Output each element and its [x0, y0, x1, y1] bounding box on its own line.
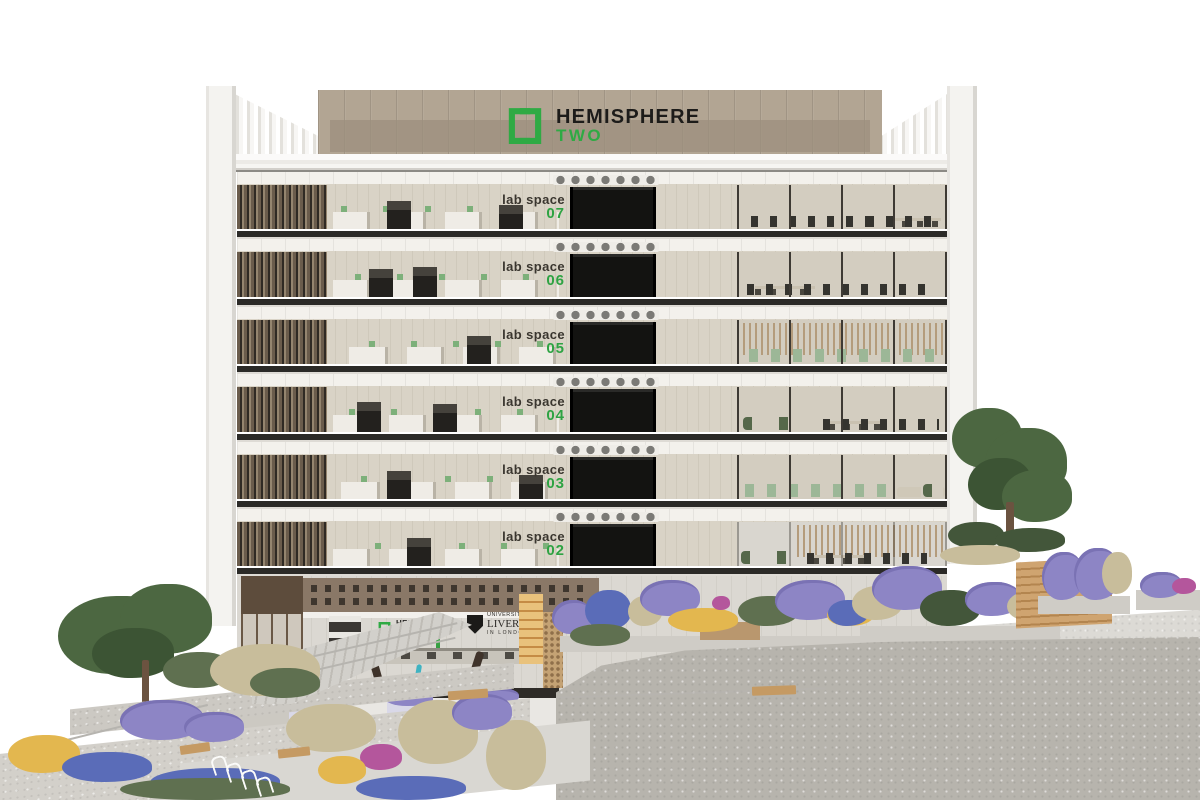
right-zone-offices [737, 185, 947, 229]
floor-slab [237, 364, 947, 374]
fume-hood [407, 538, 431, 566]
floor-label: lab space 05 [435, 328, 565, 357]
tree-canopy [92, 628, 174, 678]
right-zone-lounge [737, 455, 947, 499]
blue-flowers [356, 776, 466, 800]
corner-column-left [206, 86, 236, 626]
magenta-flowers [360, 744, 402, 770]
hemisphere-two-logo-icon [504, 105, 546, 147]
floor-label-number: 04 [435, 408, 565, 423]
ceiling-port-dots [553, 445, 659, 455]
wood-slat-screen [237, 185, 327, 229]
fume-hood [387, 201, 411, 229]
ceiling-port-dots [553, 310, 659, 320]
glazing-mullions [737, 387, 947, 432]
right-zone-meeting-garden [737, 387, 947, 432]
ornamental-grass [1102, 552, 1132, 594]
ornamental-grass [486, 720, 546, 790]
elevator-core [570, 187, 656, 229]
floor-label: lab space 07 [435, 193, 565, 222]
lavender-plant [184, 712, 244, 742]
floor-slab [237, 297, 947, 307]
tree-trunk [142, 660, 149, 706]
yellow-flowers [318, 756, 366, 784]
wood-slat-screen [237, 387, 327, 432]
floor-07: lab space 07 [237, 172, 947, 239]
right-zone-open-desks [737, 320, 947, 364]
floor-label-name: lab space [435, 193, 565, 206]
fume-hood [369, 269, 393, 297]
architectural-cutaway-render: HEMISPHERE TWO lab space 07 [0, 0, 1200, 800]
glazing-mullions [737, 252, 947, 297]
floor-label-number: 05 [435, 341, 565, 356]
planter-wall [1038, 596, 1130, 614]
ornamental-grass [940, 545, 1020, 565]
shrub [570, 624, 630, 646]
floor-slab [237, 432, 947, 442]
floor-label-name: lab space [435, 395, 565, 408]
floor-label-name: lab space [435, 530, 565, 543]
brand-name: HEMISPHERE [556, 107, 700, 127]
elevator-core [570, 322, 656, 364]
shrub [250, 668, 320, 698]
wood-slat-screen [237, 522, 327, 566]
floor-05: lab space 05 [237, 307, 947, 374]
lit-stair-feature [519, 594, 543, 664]
wood-slat-screen [237, 455, 327, 499]
ceiling-port-dots [553, 512, 659, 522]
floor-slab [237, 229, 947, 239]
floor-label: lab space 06 [435, 260, 565, 289]
roof-fins-right [880, 92, 948, 158]
roof-cornice [226, 154, 958, 172]
fume-hood [413, 267, 437, 297]
magenta-flowers [1172, 578, 1196, 594]
ceiling-port-dots [553, 242, 659, 252]
yellow-flowers [668, 608, 738, 632]
elevator-core [570, 389, 656, 432]
magenta-flowers [712, 596, 730, 610]
roof-fins-left [236, 92, 320, 158]
floor-label-number: 03 [435, 476, 565, 491]
blue-flowers [62, 752, 152, 782]
floor-slab [237, 499, 947, 509]
ceiling-port-dots [553, 377, 659, 387]
ceiling-port-dots [553, 175, 659, 185]
glazing-mullions [737, 185, 947, 229]
floor-06: lab space 06 [237, 239, 947, 307]
wooden-bench [752, 685, 796, 696]
floor-04: lab space 04 [237, 374, 947, 442]
floor-label: lab space 03 [435, 463, 565, 492]
wood-slat-screen [237, 252, 327, 297]
ornamental-grass [286, 704, 376, 752]
fume-hood [387, 471, 411, 499]
elevator-core [570, 457, 656, 499]
floor-label-number: 07 [435, 206, 565, 221]
brand-subname: TWO [556, 127, 700, 146]
floor-03: lab space 03 [237, 442, 947, 509]
glazing-mullions [737, 455, 947, 499]
entrance-frame [241, 576, 303, 614]
signage-band: HEMISPHERE TWO [318, 90, 882, 156]
wood-slat-screen [237, 320, 327, 364]
floor-label-name: lab space [435, 260, 565, 273]
fume-hood [357, 402, 381, 432]
brand-lockup: HEMISPHERE TWO [504, 102, 744, 150]
floor-label: lab space 04 [435, 395, 565, 424]
glazing-mullions [737, 320, 947, 364]
foreground-stone-block [556, 632, 1200, 800]
floor-label-name: lab space [435, 328, 565, 341]
lab-floors: lab space 07 lab space 06 [237, 172, 947, 576]
floor-label-name: lab space [435, 463, 565, 476]
right-zone-meeting [737, 252, 947, 297]
floor-label-number: 06 [435, 273, 565, 288]
elevator-core [570, 254, 656, 297]
